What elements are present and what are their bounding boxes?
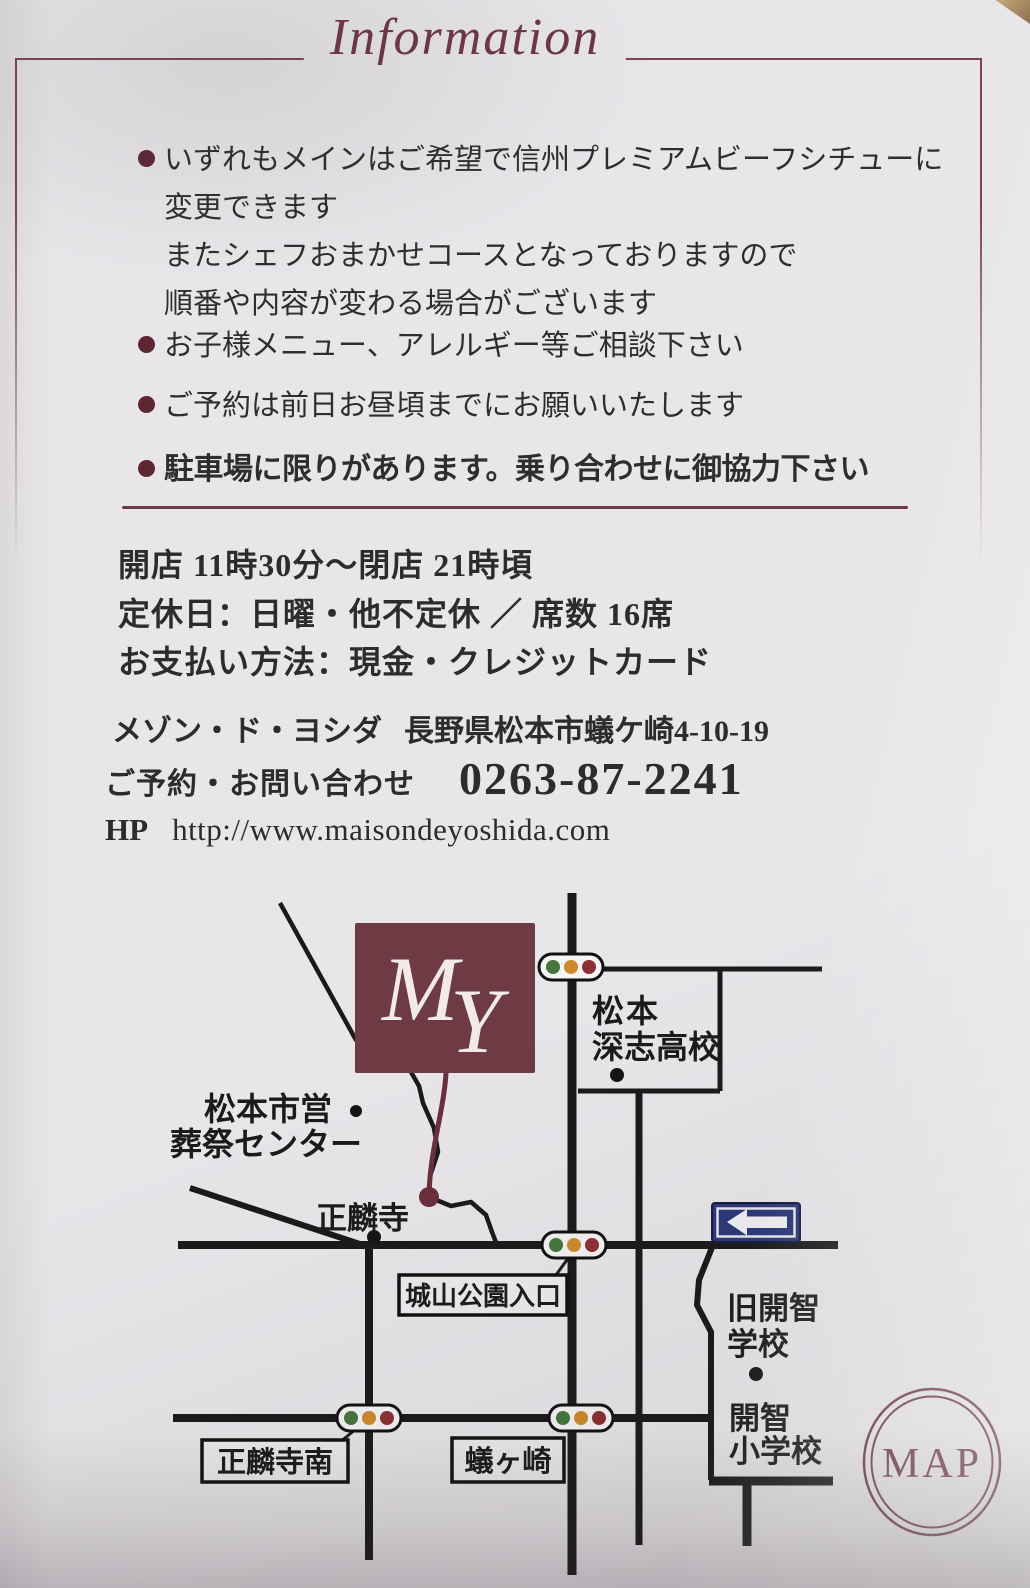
map-label-fukashi: 深志高校 (592, 1029, 720, 1065)
note-item: いずれもメインはご希望で信州プレミアムビーフシチューに 変更できます またシェフ… (138, 136, 943, 328)
map-label-sousai: 葬祭センター (170, 1126, 362, 1162)
restaurant-name: メゾン・ド・ヨシダ (112, 715, 382, 748)
bullet-dot (138, 460, 155, 477)
map-label-kaichi: 開智 (729, 1401, 791, 1436)
map-label-shorinji-minami: 正麟寺南 (217, 1446, 333, 1479)
map-label-shiroyama: 城山公園入口 (405, 1281, 561, 1311)
bullet-dot (138, 396, 155, 413)
paper-edge-corner (994, 0, 1030, 24)
section-divider (122, 506, 908, 509)
note-line: 駐車場に限りがあります。乗り合わせに御協力下さい (164, 446, 869, 494)
map-boxed-labels: 城山公園入口 正麟寺南 蟻ヶ崎 (202, 1275, 567, 1482)
one-way-sign-icon (712, 1203, 800, 1242)
note-line: ご予約は前日お昼頃までにお願いいたします (164, 382, 744, 430)
location-dot (419, 1187, 439, 1207)
restaurant-address: 長野県松本市蟻ケ崎4-10-19 (404, 715, 769, 748)
traffic-light-icon (542, 1232, 606, 1258)
reserve-label: ご予約・お問い合わせ (105, 759, 415, 803)
landmark-dot (610, 1068, 624, 1082)
contact-hp-line: HP http://www.maisondeyoshida.com (105, 812, 610, 848)
access-map: M Y 松本 深志高校 松 (0, 888, 1030, 1588)
map-label-kaichi: 小学校 (729, 1434, 822, 1469)
landmark-dot (749, 1367, 763, 1381)
map-label-sousai: 松本市営 (204, 1091, 332, 1127)
bullet-dot (138, 336, 155, 353)
note-item: お子様メニュー、アレルギー等ご相談下さい (138, 322, 744, 370)
location-stem (429, 1073, 446, 1195)
map-label-kyukaichi: 旧開智 (727, 1291, 820, 1326)
traffic-light-icon (539, 954, 603, 980)
contact-reserve-line: ご予約・お問い合わせ 0263-87-2241 (105, 752, 744, 805)
note-line: 順番や内容が変わる場合がございます (164, 280, 943, 328)
hours-line: 開店 11時30分～閉店 21時頃 (118, 540, 533, 586)
phone-number: 0263-87-2241 (459, 752, 744, 805)
map-badge-text: MAP (882, 1441, 982, 1487)
map-badge: MAP (864, 1389, 1000, 1535)
payment-line: お支払い方法：現金・クレジットカード (118, 637, 712, 683)
map-label-shorinji: 正麟寺 (316, 1201, 409, 1236)
note-item: 駐車場に限りがあります。乗り合わせに御協力下さい (138, 446, 869, 494)
map-label-kyukaichi: 学校 (727, 1327, 789, 1362)
note-item: ご予約は前日お昼頃までにお願いいたします (138, 382, 744, 430)
bullet-dot (138, 150, 155, 167)
website-url: http://www.maisondeyoshida.com (172, 812, 610, 848)
map-label-arigasaki: 蟻ヶ崎 (464, 1445, 551, 1478)
note-line: いずれもメインはご希望で信州プレミアムビーフシチューに (164, 136, 943, 184)
restaurant-logo: M Y (355, 923, 535, 1207)
note-line: 変更できます (164, 184, 943, 232)
note-line: またシェフおまかせコースとなっておりますので (164, 232, 943, 280)
map-label-fukashi: 松本 (592, 993, 660, 1029)
flyer-page: Information いずれもメインはご希望で信州プレミアムビーフシチューに … (0, 0, 1030, 1588)
landmark-dot (350, 1105, 362, 1117)
landmark-dot (367, 1230, 381, 1244)
traffic-light-icon (337, 1405, 401, 1431)
contact-name-line: メゾン・ド・ヨシダ長野県松本市蟻ケ崎4-10-19 (112, 706, 769, 750)
logo-monogram: Y (450, 970, 510, 1072)
closed-line: 定休日：日曜・他不定休 ／ 席数 16席 (118, 589, 674, 635)
page-title: Information (304, 8, 626, 67)
note-line: お子様メニュー、アレルギー等ご相談下さい (164, 322, 744, 370)
hp-label: HP (105, 812, 148, 848)
traffic-light-icon (549, 1405, 613, 1431)
